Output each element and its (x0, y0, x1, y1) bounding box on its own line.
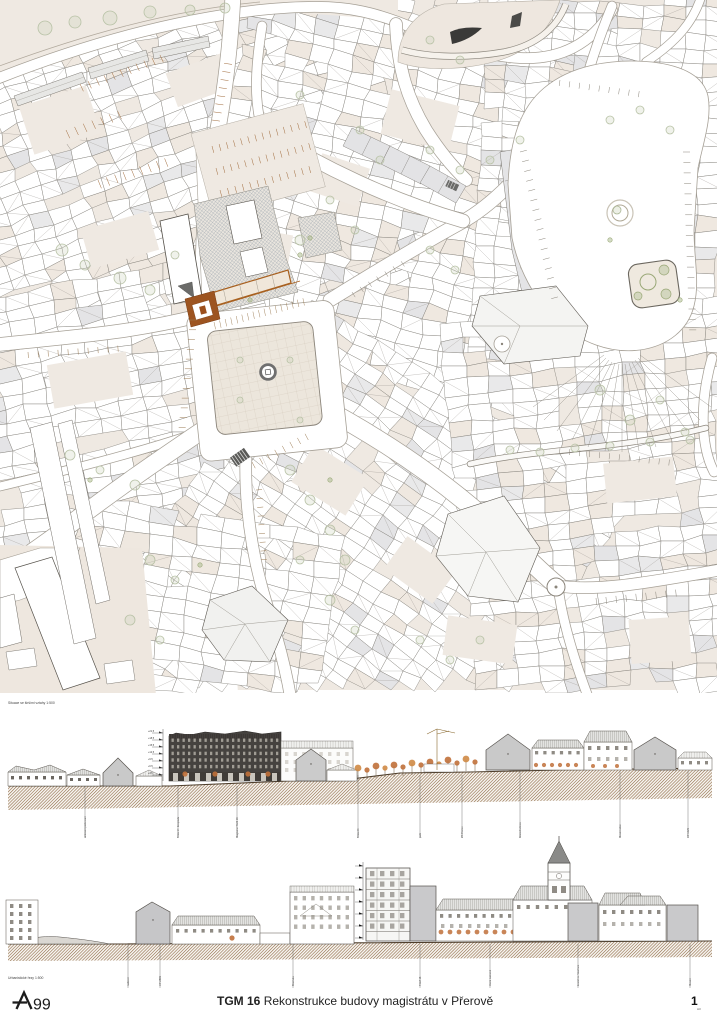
svg-text:A3: A3 (697, 1007, 701, 1011)
svg-text:kostel sv. Vavrince: kostel sv. Vavrince (576, 964, 580, 986)
svg-text:TGM 16 Rekonstrukce budovy mag: TGM 16 Rekonstrukce budovy magistrátu v … (217, 994, 493, 1008)
svg-text:Magistrat TGM 16: Magistrat TGM 16 (235, 817, 239, 838)
svg-text:Urbanistické řezy 1:500: Urbanistické řezy 1:500 (8, 976, 44, 980)
svg-text:Trida 17. listopadu: Trida 17. listopadu (176, 816, 180, 838)
svg-text:CP 2883: CP 2883 (158, 975, 162, 986)
svg-text:Mostni ulice: Mostni ulice (618, 824, 622, 838)
svg-text:Bratrska: Bratrska (291, 976, 295, 986)
svg-text:1: 1 (691, 994, 698, 1008)
svg-text:Trida 24: Trida 24 (356, 828, 360, 838)
svg-text:Mostni: Mostni (688, 978, 692, 986)
svg-text:+12.5: +12.5 (148, 751, 155, 754)
svg-text:99: 99 (33, 997, 51, 1014)
svg-text:nabrezi: nabrezi (126, 977, 130, 986)
svg-text:ZS Prerov: ZS Prerov (460, 826, 464, 838)
svg-text:+3.5: +3.5 (148, 772, 153, 775)
svg-text:TGM 16: TGM 16 (418, 976, 422, 986)
svg-text:umisteni parkovani: umisteni parkovani (83, 816, 87, 838)
svg-text:+6.5: +6.5 (148, 765, 153, 768)
svg-text:park: park (418, 832, 422, 838)
svg-text:+15.5: +15.5 (148, 744, 155, 747)
svg-text:+21.5: +21.5 (148, 730, 155, 733)
svg-text:Kratochvilova: Kratochvilova (518, 822, 522, 838)
svg-text:CP 1029: CP 1029 (686, 827, 690, 838)
svg-text:Situace se širšími vztahy 1:50: Situace se širšími vztahy 1:500 (8, 701, 55, 705)
svg-text:Horni namesti: Horni namesti (488, 970, 492, 986)
svg-text:+9.5: +9.5 (148, 758, 153, 761)
svg-text:+18.5: +18.5 (148, 737, 155, 740)
